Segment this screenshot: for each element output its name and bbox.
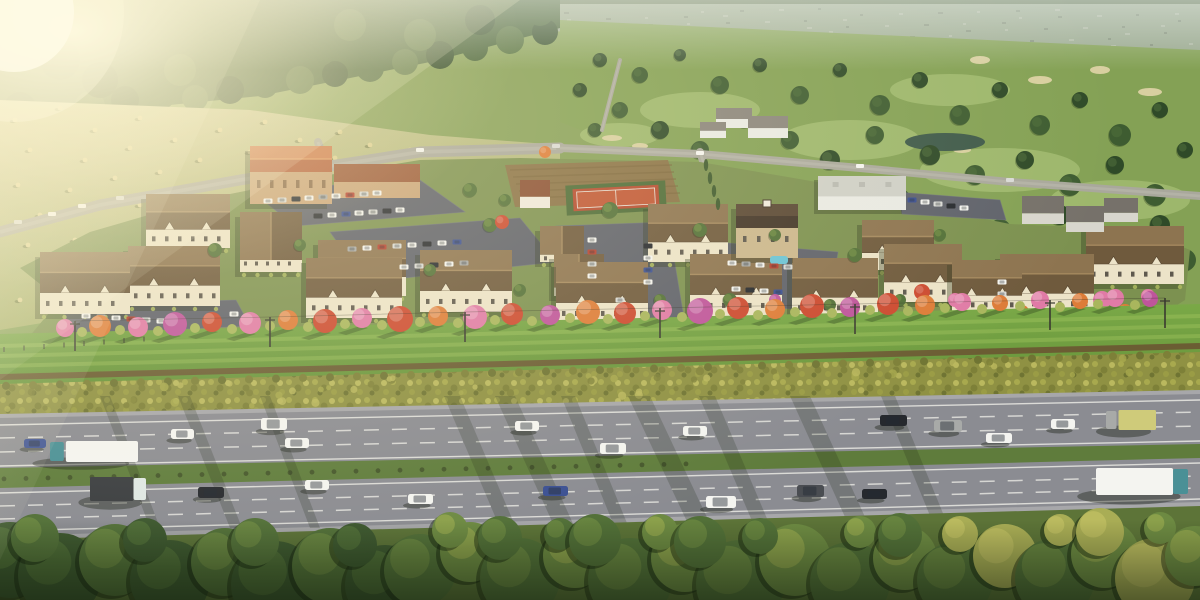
sun-flare [0, 0, 900, 520]
scene-svg [0, 0, 1200, 600]
lighting-layer [0, 0, 1200, 600]
aerial-rendering [0, 0, 1200, 600]
